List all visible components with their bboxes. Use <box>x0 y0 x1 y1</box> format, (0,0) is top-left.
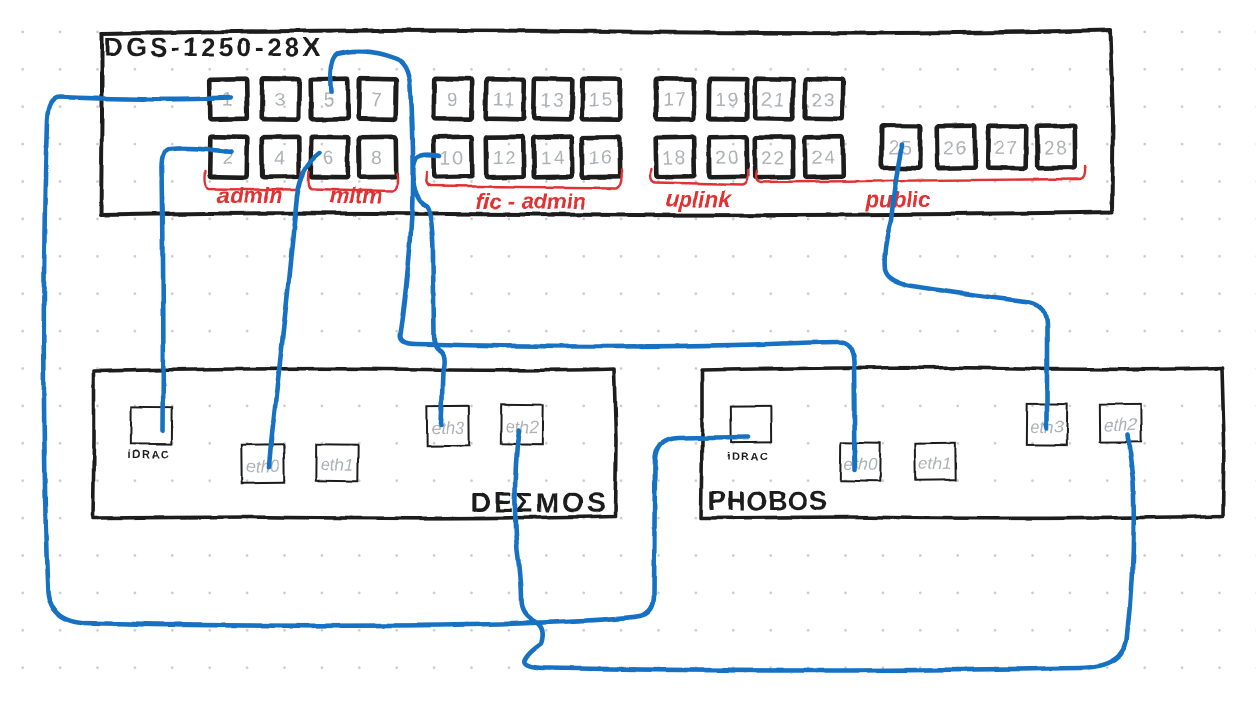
svg-text:eth2: eth2 <box>1104 416 1138 435</box>
svg-text:PHOBOS: PHOBOS <box>708 486 828 516</box>
svg-text:uplink: uplink <box>666 187 733 212</box>
svg-text:iDRAC: iDRAC <box>727 451 769 463</box>
svg-text:DEΣMOS: DEΣMOS <box>471 487 608 518</box>
svg-text:eth2: eth2 <box>505 417 539 436</box>
svg-text:26: 26 <box>943 138 968 159</box>
svg-text:eth0: eth0 <box>844 455 878 474</box>
svg-text:14: 14 <box>540 148 565 169</box>
svg-text:16: 16 <box>588 148 613 169</box>
svg-text:iDRAC: iDRAC <box>128 449 170 461</box>
svg-text:17: 17 <box>662 90 687 111</box>
svg-text:eth1: eth1 <box>918 454 951 473</box>
svg-text:27: 27 <box>994 138 1019 159</box>
svg-text:6: 6 <box>323 148 336 169</box>
svg-text:21: 21 <box>761 90 787 111</box>
svg-text:admin: admin <box>218 183 283 208</box>
svg-text:public: public <box>865 187 931 212</box>
svg-text:3: 3 <box>274 90 287 111</box>
svg-text:eth1: eth1 <box>320 455 353 474</box>
svg-text:12: 12 <box>492 148 517 169</box>
svg-text:15: 15 <box>588 90 613 111</box>
svg-text:28: 28 <box>1043 138 1068 159</box>
svg-text:22: 22 <box>761 148 786 169</box>
svg-text:9: 9 <box>447 90 460 111</box>
svg-text:24: 24 <box>811 148 836 169</box>
svg-text:13: 13 <box>540 90 566 111</box>
svg-text:4: 4 <box>274 148 287 169</box>
svg-text:eth3: eth3 <box>431 419 465 438</box>
svg-text:20: 20 <box>715 148 740 169</box>
svg-text:DGS-1250-28X: DGS-1250-28X <box>104 32 324 62</box>
svg-text:19: 19 <box>715 90 740 111</box>
svg-text:10: 10 <box>440 148 466 169</box>
svg-text:7: 7 <box>371 90 384 111</box>
svg-text:mitm: mitm <box>330 183 383 208</box>
svg-text:23: 23 <box>811 90 836 111</box>
svg-text:18: 18 <box>662 148 688 169</box>
svg-text:11: 11 <box>493 90 517 111</box>
svg-text:8: 8 <box>371 148 384 169</box>
svg-text:fic - admin: fic - admin <box>476 189 586 214</box>
svg-text:eth0: eth0 <box>246 457 280 476</box>
